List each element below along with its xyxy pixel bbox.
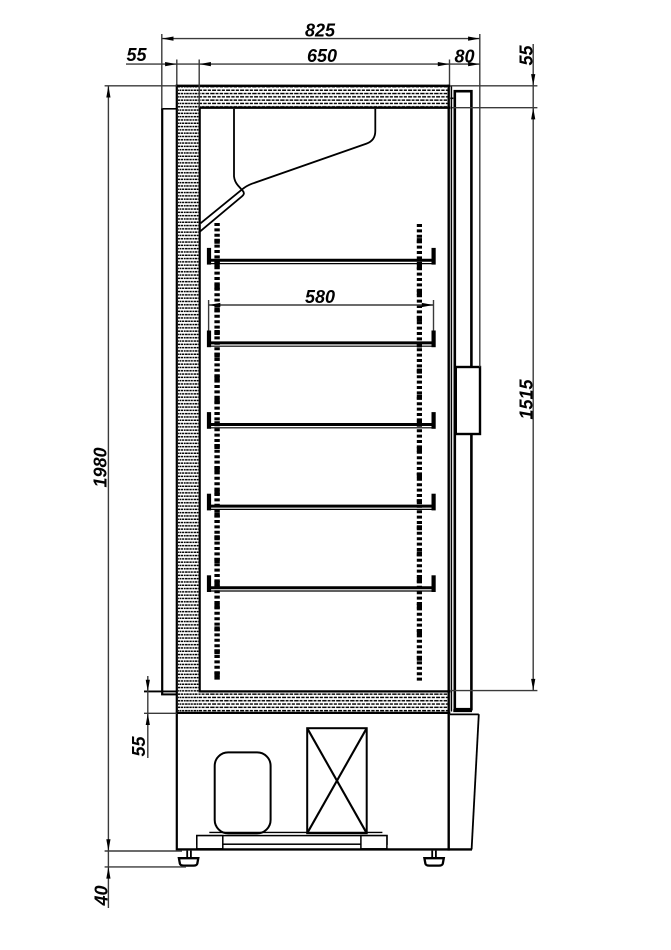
svg-text:55: 55 [517, 45, 537, 66]
svg-text:825: 825 [305, 21, 336, 41]
svg-text:650: 650 [307, 46, 337, 66]
svg-text:80: 80 [454, 47, 474, 67]
svg-text:40: 40 [92, 885, 112, 906]
svg-text:580: 580 [305, 287, 335, 307]
svg-text:55: 55 [126, 45, 147, 65]
svg-text:1515: 1515 [517, 378, 537, 419]
svg-text:1980: 1980 [91, 447, 111, 487]
svg-text:55: 55 [129, 736, 149, 757]
